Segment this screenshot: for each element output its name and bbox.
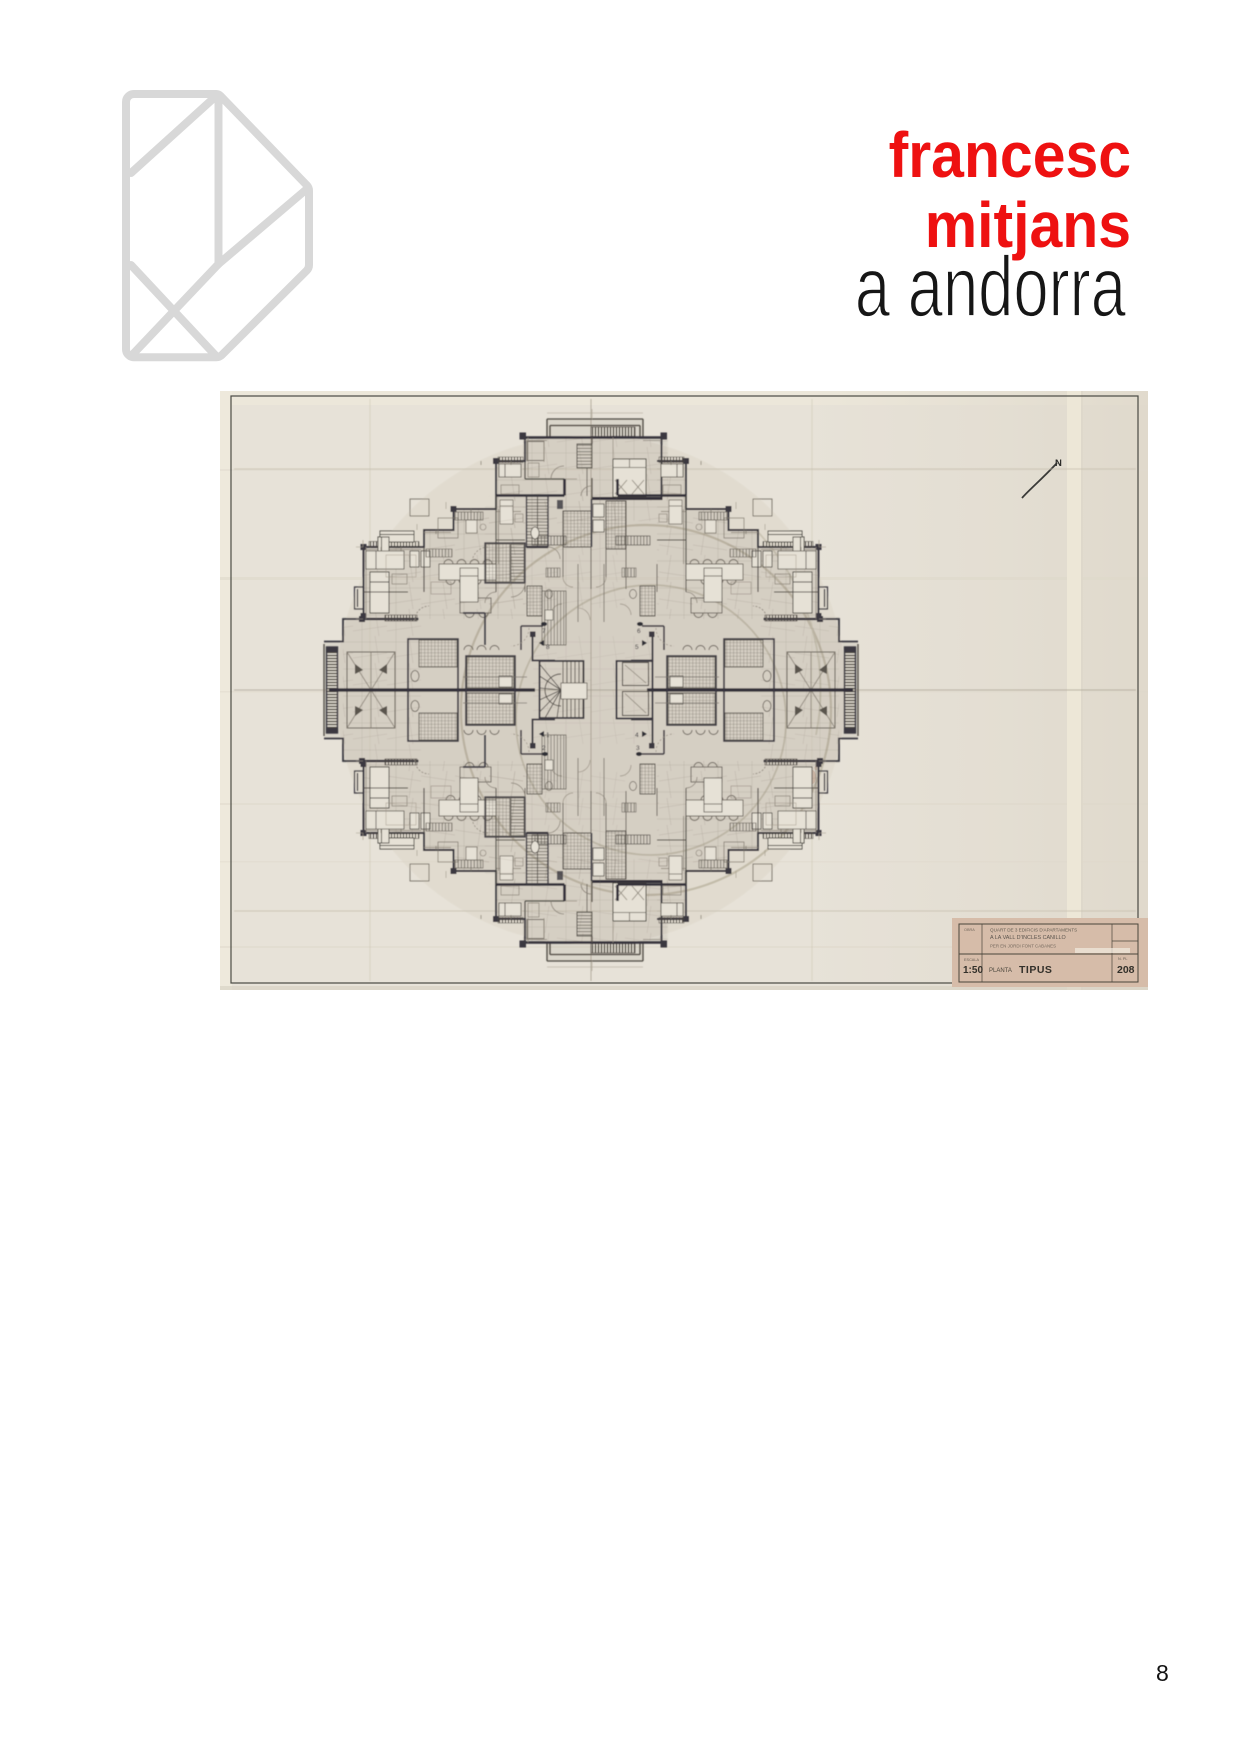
svg-text:OBRA: OBRA [964, 928, 975, 932]
svg-text:PLANTA: PLANTA [989, 968, 1012, 974]
svg-text:TIPUS: TIPUS [1019, 964, 1052, 976]
svg-text:A LA VALL D'INCLES CANILLO: A LA VALL D'INCLES CANILLO [990, 935, 1066, 941]
svg-text:QUART DE 3 EDIFICIS D'APARTAME: QUART DE 3 EDIFICIS D'APARTAMENTS [990, 928, 1077, 933]
svg-text:PER EN JORDI FONT CABANES: PER EN JORDI FONT CABANES [990, 944, 1056, 949]
svg-text:1:50: 1:50 [963, 965, 983, 976]
svg-text:N. PL: N. PL [1118, 957, 1128, 961]
svg-text:208: 208 [1117, 964, 1135, 976]
svg-text:ESCALA: ESCALA [964, 958, 979, 962]
svg-text:N: N [1055, 458, 1062, 469]
